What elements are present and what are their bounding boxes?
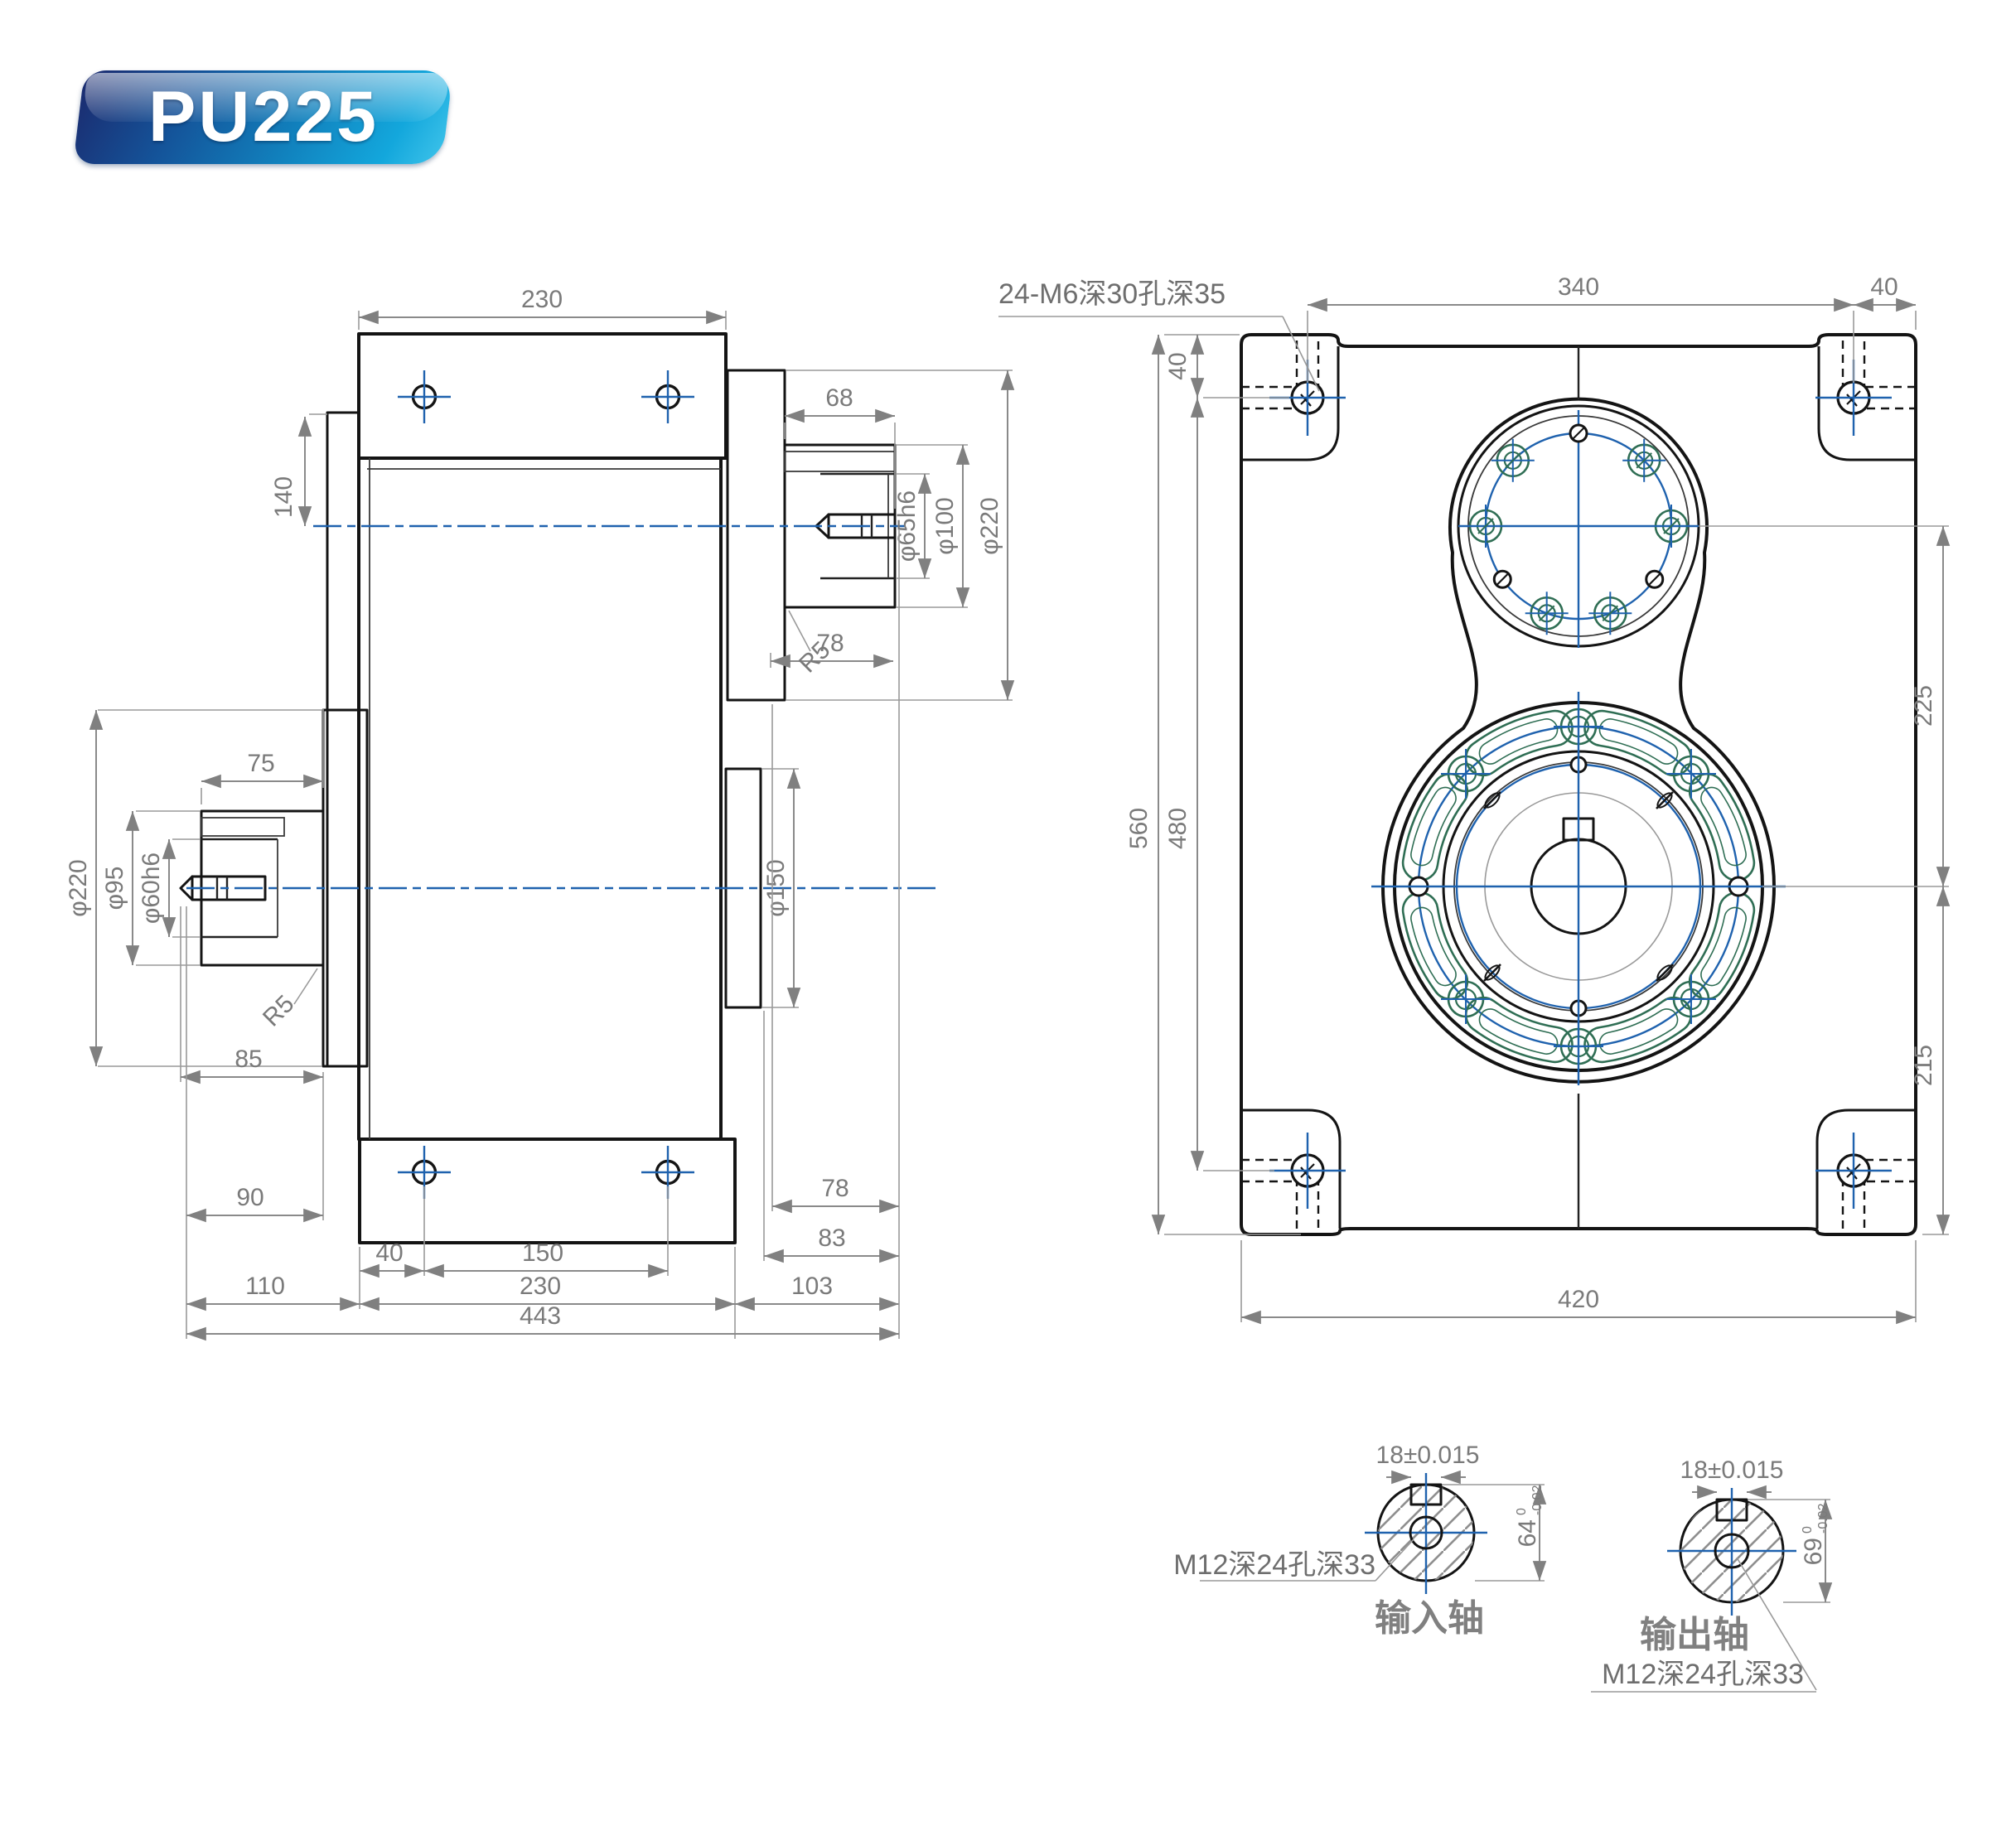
drawing-page: PU225 bbox=[0, 0, 2016, 1821]
dim-140: 140 bbox=[270, 476, 297, 518]
dim-90: 90 bbox=[236, 1184, 263, 1211]
dim-40-top-right: 40 bbox=[1870, 273, 1898, 301]
dim-150-bottom: 150 bbox=[522, 1239, 563, 1267]
dia-95: φ95 bbox=[101, 867, 128, 910]
dim-40-bottom: 40 bbox=[375, 1239, 403, 1267]
input-dia-dim: 64 0 -0.02 bbox=[1514, 1485, 1545, 1547]
dim-443: 443 bbox=[520, 1302, 561, 1330]
flange-bolt-holes bbox=[398, 370, 694, 1199]
fillet-r5-output: R5 bbox=[258, 990, 299, 1031]
input-thread-note: M12深24孔深33 bbox=[1173, 1549, 1375, 1581]
dim-83: 83 bbox=[818, 1224, 845, 1252]
dim-215: 215 bbox=[1910, 1045, 1937, 1086]
dim-340: 340 bbox=[1558, 273, 1599, 301]
housing-body bbox=[359, 458, 721, 1139]
input-shaft-title: 输入轴 bbox=[1375, 1598, 1484, 1639]
technical-drawing: 230 140 68 78 φ65h6 φ100 φ220 bbox=[0, 0, 2016, 1821]
dim-40-left: 40 bbox=[1164, 352, 1192, 379]
dia-150: φ150 bbox=[762, 859, 790, 917]
dia-65h6: φ65h6 bbox=[893, 490, 921, 562]
dim-560: 560 bbox=[1125, 808, 1153, 849]
thread-note: 24-M6深30孔深35 bbox=[998, 278, 1226, 310]
dia-100: φ100 bbox=[931, 497, 959, 555]
dim-103: 103 bbox=[791, 1273, 833, 1300]
front-view: 24-M6深30孔深35 340 40 40 480 560 225 bbox=[998, 273, 1949, 1322]
output-thread-note: M12深24孔深33 bbox=[1602, 1659, 1804, 1690]
output-dia-dim: 69 0 -0.02 bbox=[1800, 1503, 1830, 1565]
front-view-dimensions: 24-M6深30孔深35 340 40 40 480 560 225 bbox=[998, 273, 1949, 1322]
dim-230-bottom: 230 bbox=[520, 1273, 561, 1300]
dim-68: 68 bbox=[825, 384, 853, 412]
output-shaft-detail: 18±0.015 69 0 -0.02 输出轴 M12深24孔深33 bbox=[1591, 1456, 1830, 1692]
dia-220-input: φ220 bbox=[976, 497, 1003, 555]
svg-text:0: 0 bbox=[1515, 1508, 1529, 1515]
dia-220-output: φ220 bbox=[65, 859, 92, 917]
input-keyway-dim: 18±0.015 bbox=[1376, 1442, 1480, 1469]
dim-78-bottom: 78 bbox=[821, 1175, 848, 1202]
dim-230-top: 230 bbox=[521, 286, 563, 313]
dia-60h6: φ60h6 bbox=[138, 853, 165, 924]
dim-420: 420 bbox=[1558, 1286, 1599, 1313]
output-keyway-dim: 18±0.015 bbox=[1680, 1456, 1784, 1484]
dim-225: 225 bbox=[1910, 685, 1937, 727]
dim-480: 480 bbox=[1164, 808, 1192, 849]
input-flange-disk bbox=[728, 370, 785, 700]
svg-text:-0.02: -0.02 bbox=[1530, 1485, 1545, 1515]
dim-75: 75 bbox=[247, 750, 274, 777]
side-view: 230 140 68 78 φ65h6 φ100 φ220 bbox=[65, 286, 1013, 1339]
svg-text:-0.02: -0.02 bbox=[1816, 1503, 1830, 1534]
svg-text:64: 64 bbox=[1514, 1519, 1541, 1547]
side-left-wall bbox=[327, 413, 359, 1066]
svg-text:0: 0 bbox=[1801, 1526, 1815, 1534]
svg-text:69: 69 bbox=[1800, 1538, 1827, 1565]
input-shaft-detail: 18±0.015 64 0 -0.02 M12深24孔深33 输入轴 bbox=[1173, 1442, 1545, 1639]
bottom-flange bbox=[360, 1139, 735, 1243]
output-shaft-title: 输出轴 bbox=[1640, 1615, 1749, 1655]
dim-85: 85 bbox=[234, 1046, 262, 1073]
dim-110: 110 bbox=[245, 1273, 285, 1300]
